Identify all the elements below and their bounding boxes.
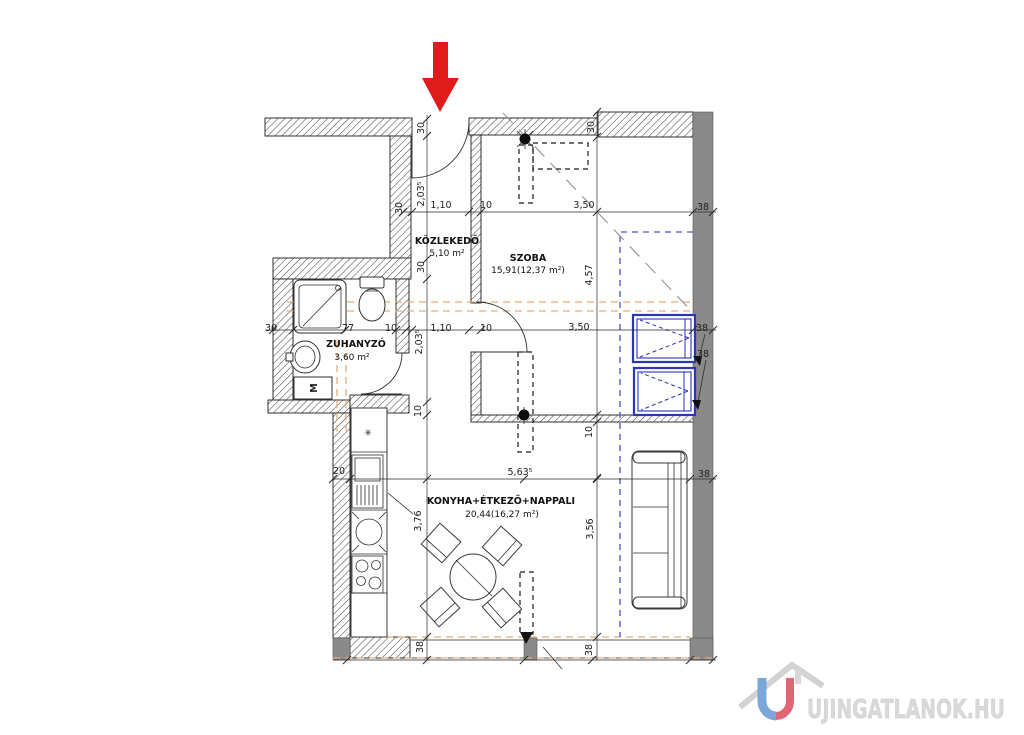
toilet (359, 277, 385, 321)
dim-label: 38 (698, 469, 710, 480)
watermark: UJINGATLANOK.HU (740, 665, 1005, 725)
room-name-nappali: KONYHA+ÉTKEZŐ+NAPPALI (427, 495, 575, 507)
light-points (517, 129, 533, 424)
light-dot-lower (519, 410, 530, 421)
dashed-duct-upper (519, 145, 533, 203)
dim-label: 3,56 (585, 518, 596, 539)
wall-top-mid (469, 118, 598, 135)
window-upper (633, 315, 695, 362)
room-area-zuhanyzo: 3,60 m² (334, 353, 370, 363)
wall-bath-bottom-left (268, 400, 350, 413)
watermark-text: UJINGATLANOK.HU (807, 695, 1005, 725)
dim-label: 5,63⁵ (508, 467, 533, 478)
kitchen-leader (388, 493, 413, 514)
dim-label: 2,03⁵ (416, 181, 427, 206)
counter-outline (351, 408, 387, 637)
room-name-zuhanyzo: ZUHANYZÓ (326, 338, 386, 350)
wall-niche-vertical (390, 136, 411, 259)
kitchen-counter: ✳ (351, 408, 413, 637)
room-name-szoba: SZOBA (510, 253, 547, 264)
dashed-rect-szoba (533, 143, 588, 169)
dim-label: 4,57 (584, 264, 595, 285)
boiler-symbol: ✳ (364, 428, 372, 439)
dim-label: 30 (265, 323, 277, 334)
wall-bottom-segment (350, 637, 410, 658)
window-lower (634, 368, 695, 415)
room-area-kozlekedo: 5,10 m² (429, 249, 465, 259)
dim-label: 30 (586, 121, 597, 133)
dining-set (420, 523, 522, 628)
dim-label: 77 (342, 323, 354, 334)
dim-label: 30 (416, 122, 427, 134)
dim-label: 38 (584, 644, 595, 656)
dim-label: 3,50 (573, 200, 594, 211)
dim-label: 38 (696, 323, 708, 334)
pillar-bottom-left (333, 638, 350, 660)
dim-label: 1,10 (430, 323, 451, 334)
wall-szoba-left-upper (471, 135, 481, 303)
dim-label: 30 (394, 202, 405, 214)
washer-label: M (309, 383, 320, 392)
dim-label: 10 (480, 200, 492, 211)
dim-label: 10 (385, 323, 397, 334)
wall-kitchen-left (333, 413, 350, 638)
floorplan-page: M ✳ (0, 0, 1024, 735)
chair (420, 587, 460, 627)
wall-bath-right (396, 279, 409, 353)
dim-label: 1,10 (430, 200, 451, 211)
dim-label: 3,76 (413, 510, 424, 531)
dim-label: 2,03⁵ (414, 329, 425, 354)
bathroom-fixtures: M (286, 277, 385, 399)
floorplan-drawing: M ✳ (0, 0, 1024, 735)
wall-top-right (598, 112, 693, 137)
room-area-nappali: 20,44(16,27 m²) (465, 510, 539, 520)
light-dot-entry (520, 134, 531, 145)
dim-label: 10 (584, 426, 595, 438)
dim-label: 10 (413, 405, 424, 417)
dashed-duct-lower (520, 572, 533, 634)
dim-label: 38 (697, 202, 709, 213)
sofa (632, 451, 687, 609)
wall-szoba-left-lower (471, 352, 481, 415)
dim-label: 20 (333, 466, 345, 477)
dim-label: 30 (416, 261, 427, 273)
dim-label: 38 (697, 349, 709, 360)
diagonal-dashed-line (503, 113, 698, 318)
wall-bath-left (273, 279, 293, 403)
room-name-kozlekedo: KÖZLEKEDŐ (415, 236, 479, 247)
dim-label: 10 (480, 323, 492, 334)
dim-label: 3,50 (568, 322, 589, 333)
dashed-duct-middle (518, 352, 533, 452)
wall-bath-top (273, 258, 411, 279)
wall-top-left (265, 118, 412, 136)
washing-machine: M (294, 377, 332, 399)
room-area-szoba: 15,91(12,37 m²) (491, 266, 565, 276)
entrance-arrow-icon (422, 42, 459, 112)
shower (294, 280, 346, 333)
logo-u-right-icon (776, 678, 790, 716)
dim-label: 38 (415, 641, 426, 653)
